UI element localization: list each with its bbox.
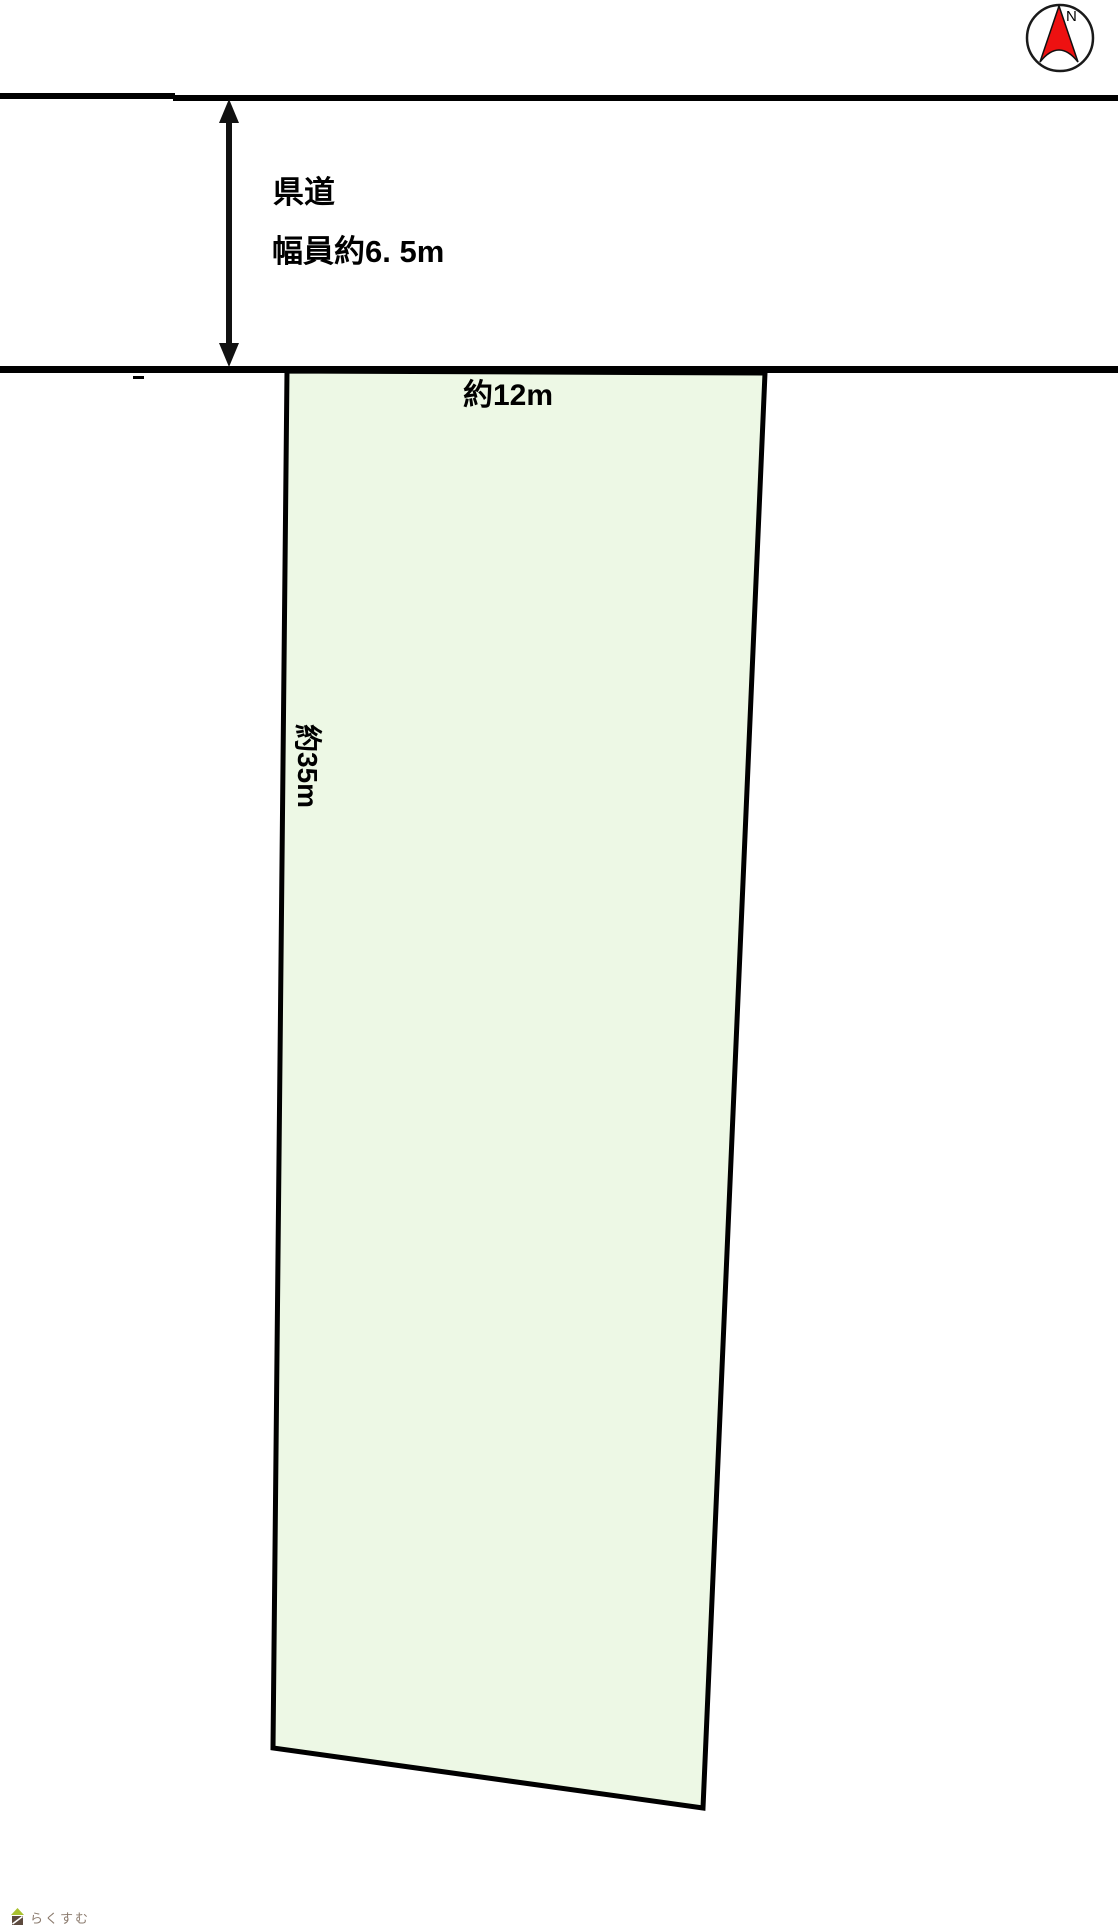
road-top-line-left [0,93,175,99]
frontage-label: 約12m [463,379,553,412]
house-icon [10,1908,25,1925]
depth-label: 約35m [292,724,322,808]
plan-drawing: N [0,0,1118,1930]
stray-mark [133,376,144,379]
arrow-stem [226,110,232,360]
compass: N [1027,5,1093,71]
road-width-label: 幅員約6. 5m [272,235,444,269]
compass-n-label: N [1066,8,1077,25]
logo-text: らくすむ [30,1912,90,1925]
site-plan-canvas: N 県道 幅員約6. 5m 約12m 約35m らくすむ [0,0,1118,1930]
road-lines [0,93,1118,379]
road-bottom-line [0,366,1118,373]
parcel-polygon [273,371,765,1808]
arrow-head-down-icon [219,343,239,367]
arrow-head-up-icon [219,99,239,123]
road-top-line [173,95,1118,101]
road-name-label: 県道 [273,176,335,210]
rakusumu-logo: らくすむ [10,1908,90,1925]
road-width-arrow [219,99,239,367]
